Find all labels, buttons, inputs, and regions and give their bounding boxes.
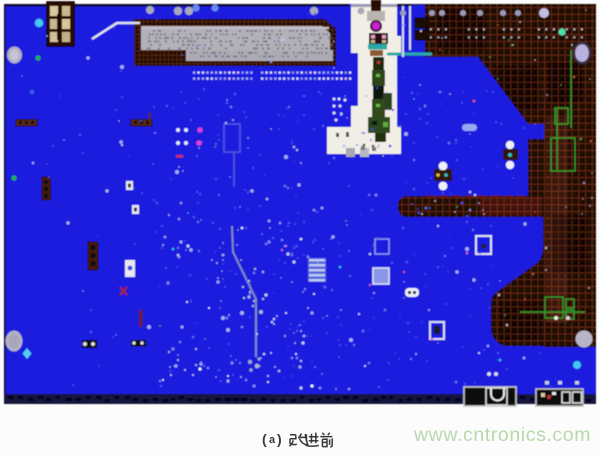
svg-text:(: ( [262, 431, 267, 447]
svg-text:www.cntronics.com: www.cntronics.com [413, 424, 591, 446]
svg-text:a: a [269, 434, 276, 446]
svg-text:): ) [277, 431, 282, 447]
